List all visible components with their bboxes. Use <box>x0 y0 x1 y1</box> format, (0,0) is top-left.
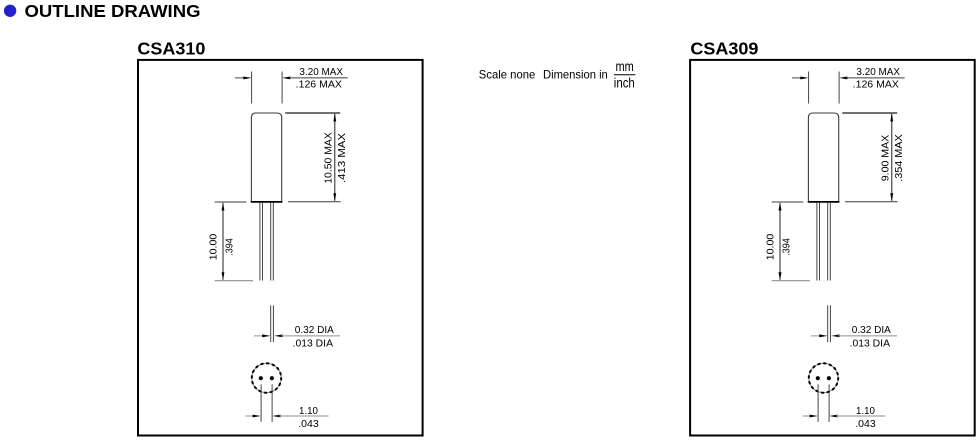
svg-text:CSA310: CSA310 <box>137 39 205 59</box>
svg-text:10.50 MAX: 10.50 MAX <box>323 132 334 184</box>
svg-text:0.32 DIA: 0.32 DIA <box>852 325 891 336</box>
svg-text:CSA309: CSA309 <box>690 39 758 59</box>
svg-text:.043: .043 <box>298 419 319 430</box>
svg-text:.013 DIA: .013 DIA <box>293 339 334 350</box>
svg-text:3.20 MAX: 3.20 MAX <box>856 67 900 78</box>
svg-text:.413 MAX: .413 MAX <box>337 132 348 183</box>
svg-text:3.20 MAX: 3.20 MAX <box>299 67 343 78</box>
svg-text:9.00 MAX: 9.00 MAX <box>880 134 891 181</box>
svg-text:Scale none: Scale none <box>479 67 536 81</box>
svg-text:0.32 DIA: 0.32 DIA <box>295 325 334 336</box>
svg-text:Dimension in: Dimension in <box>543 67 608 81</box>
svg-text:.043: .043 <box>855 419 876 430</box>
svg-text:OUTLINE DRAWING: OUTLINE DRAWING <box>25 1 201 21</box>
svg-text:.394: .394 <box>781 238 792 256</box>
svg-text:.394: .394 <box>224 238 235 256</box>
svg-text:1.10: 1.10 <box>299 406 318 417</box>
svg-text:.013 DIA: .013 DIA <box>850 339 891 350</box>
svg-text:mm: mm <box>616 58 634 74</box>
svg-text:10.00: 10.00 <box>209 233 220 260</box>
svg-text:10.00: 10.00 <box>766 233 777 260</box>
svg-text:.126 MAX: .126 MAX <box>296 80 343 91</box>
svg-text:inch: inch <box>614 74 635 90</box>
svg-text:.354 MAX: .354 MAX <box>894 134 905 182</box>
svg-text:.126 MAX: .126 MAX <box>853 80 900 91</box>
svg-text:1.10: 1.10 <box>856 406 875 417</box>
